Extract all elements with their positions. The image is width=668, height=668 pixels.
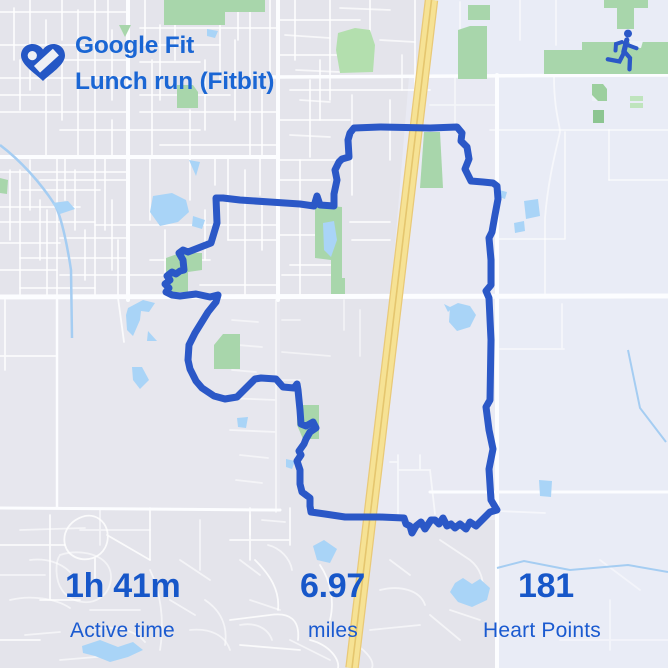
svg-text:6.97: 6.97 (300, 567, 365, 605)
svg-text:Active time: Active time (70, 619, 175, 642)
svg-text:miles: miles (308, 619, 358, 642)
svg-text:Heart Points: Heart Points (483, 619, 601, 642)
svg-text:Lunch run (Fitbit): Lunch run (Fitbit) (75, 68, 274, 95)
svg-text:Google Fit: Google Fit (75, 32, 194, 59)
svg-text:1h 41m: 1h 41m (65, 567, 180, 605)
svg-text:181: 181 (518, 567, 574, 605)
